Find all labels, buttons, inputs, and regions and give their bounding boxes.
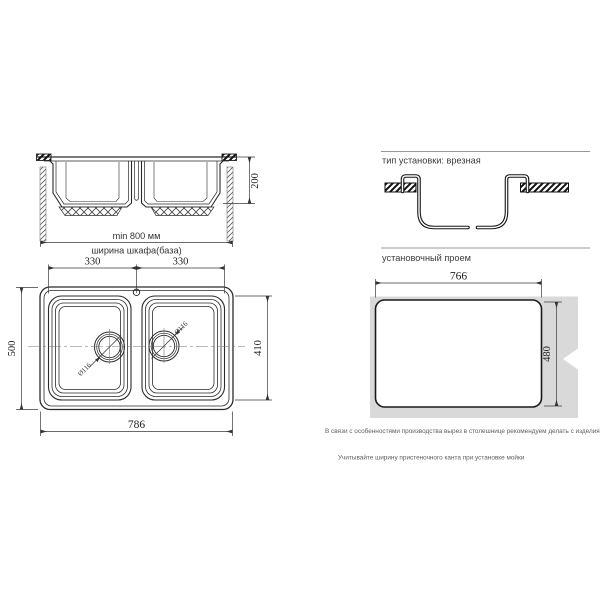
side-view	[37, 154, 237, 241]
right-bowl-cavity	[154, 162, 207, 202]
left-bowl-rim-4	[59, 307, 121, 390]
left-drain-label: Ø116	[76, 361, 93, 378]
cabinet-width-label: ширина шкафа(база)	[91, 246, 181, 256]
left-bowl-rim-3	[56, 303, 125, 393]
left-bowl-inner	[56, 161, 129, 204]
production-note: В связи с особенностями производства выр…	[325, 427, 600, 435]
right-bowl-rim-2	[146, 300, 222, 397]
installation-type-heading: тип установки: врезная	[382, 156, 481, 166]
sink-outline	[40, 287, 233, 410]
right-bowl-rim-3	[149, 303, 218, 393]
left-drain-leader	[89, 336, 121, 368]
sink-spec-sheet: 200 min 800 мм ширина шкафа(база) Ø116	[0, 0, 600, 600]
countertop-section-left	[37, 154, 52, 161]
depth-dim-label: 200	[250, 173, 261, 189]
top-view	[28, 287, 245, 410]
right-bowl-pad	[151, 207, 214, 216]
mount-countertop-left	[385, 183, 416, 192]
countertop-section-right	[222, 154, 237, 161]
right-bowl-width-label: 330	[173, 257, 189, 268]
left-bowl-width-label: 330	[85, 257, 101, 268]
cabinet-wall-right	[227, 167, 233, 241]
technical-drawing: 200 min 800 мм ширина шкафа(база) Ø116	[0, 0, 600, 600]
cabinet-wall-left	[40, 167, 46, 241]
left-drain-arrow	[95, 357, 100, 363]
left-bowl-rim-1	[49, 296, 132, 400]
right-drain-label: Ø116	[173, 319, 190, 336]
edge-note: Учитывайте ширину пристеночного канта пр…	[338, 454, 525, 462]
bowl-depth-label: 410	[253, 340, 264, 356]
sink-rim-inner	[44, 291, 229, 407]
left-bowl-rim-2	[52, 300, 128, 397]
left-bowl-pad	[59, 207, 122, 216]
opening-width-label: 766	[450, 271, 468, 283]
right-bowl-inner	[145, 161, 218, 204]
divider-bottom	[135, 199, 139, 200]
opening-height-label: 480	[542, 346, 553, 362]
overall-width-label: 786	[128, 419, 146, 431]
opening-cutout	[376, 300, 542, 407]
right-bowl-rim-1	[142, 296, 225, 400]
mount-section-drawing	[385, 176, 569, 228]
overall-depth-label: 500	[7, 341, 18, 357]
min-width-label: min 800 мм	[113, 231, 161, 241]
opening-heading: установочный проем	[382, 253, 471, 263]
left-bowl-cavity	[66, 162, 119, 202]
